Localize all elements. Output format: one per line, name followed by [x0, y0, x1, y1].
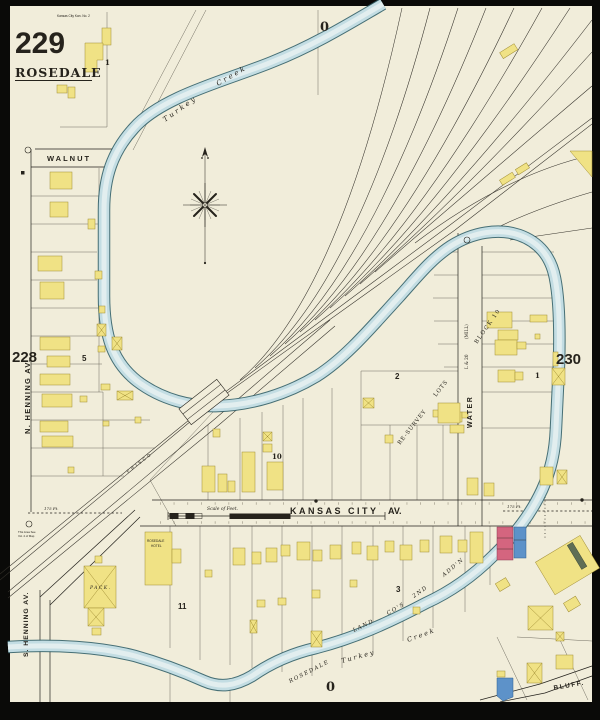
adjacent-sheet-bottom: 0: [326, 680, 335, 695]
street-water-lot: L & 20: [464, 354, 469, 369]
hydrant-square-icon: [21, 171, 25, 175]
block-number-3: 3: [396, 585, 401, 594]
scale-label: Scale of Feet.: [207, 506, 239, 512]
hotel-label-1: ROSEDALE: [147, 539, 164, 543]
block-number-5: 5: [82, 354, 87, 363]
hydrant-dot-icon: [580, 498, 583, 501]
street-water-mill: (MILL): [464, 324, 469, 339]
margin-note-2: Vol. 2 of Map: [18, 534, 35, 538]
street-walnut: WALNUT: [47, 154, 91, 163]
width-note-left: 175 Ft.: [44, 506, 59, 511]
hydrant-dot-icon: [314, 499, 317, 502]
sheet-number: 229: [15, 27, 65, 60]
block-number-11: 11: [178, 602, 187, 611]
width-note-right: 175 Ft.: [507, 504, 522, 509]
building-stone-bluff: [497, 678, 513, 701]
header-note: Kansas City Kan. No. 2: [57, 14, 90, 18]
hotel-label-2: HOTEL: [151, 544, 162, 548]
street-kansas-city-av: AV.: [388, 506, 402, 516]
adjacent-sheet-right: 230: [556, 351, 581, 368]
adjacent-sheet-top: 0: [320, 20, 329, 35]
block-number-10: 10: [272, 452, 282, 461]
block-number-1-top: 1: [105, 58, 110, 67]
street-water: WATER: [467, 396, 474, 428]
building-brick: [497, 527, 513, 560]
map-canvas: Kansas City Kan. No. 2 229 ROSEDALE 0 0 …: [0, 0, 600, 720]
building-stone: [514, 527, 526, 558]
street-s-henning: S. HENNING AV.: [23, 592, 30, 658]
pack-building-label: PACK.: [89, 585, 112, 591]
street-n-henning: N. HENNING AV.: [23, 359, 32, 434]
block-number-2: 2: [395, 372, 400, 381]
block-number-1-right: 1: [535, 371, 540, 380]
sanborn-map-sheet: Kansas City Kan. No. 2 229 ROSEDALE 0 0 …: [0, 0, 600, 720]
city-name: ROSEDALE: [15, 65, 102, 80]
street-kansas-city: KANSAS CITY: [290, 506, 379, 516]
